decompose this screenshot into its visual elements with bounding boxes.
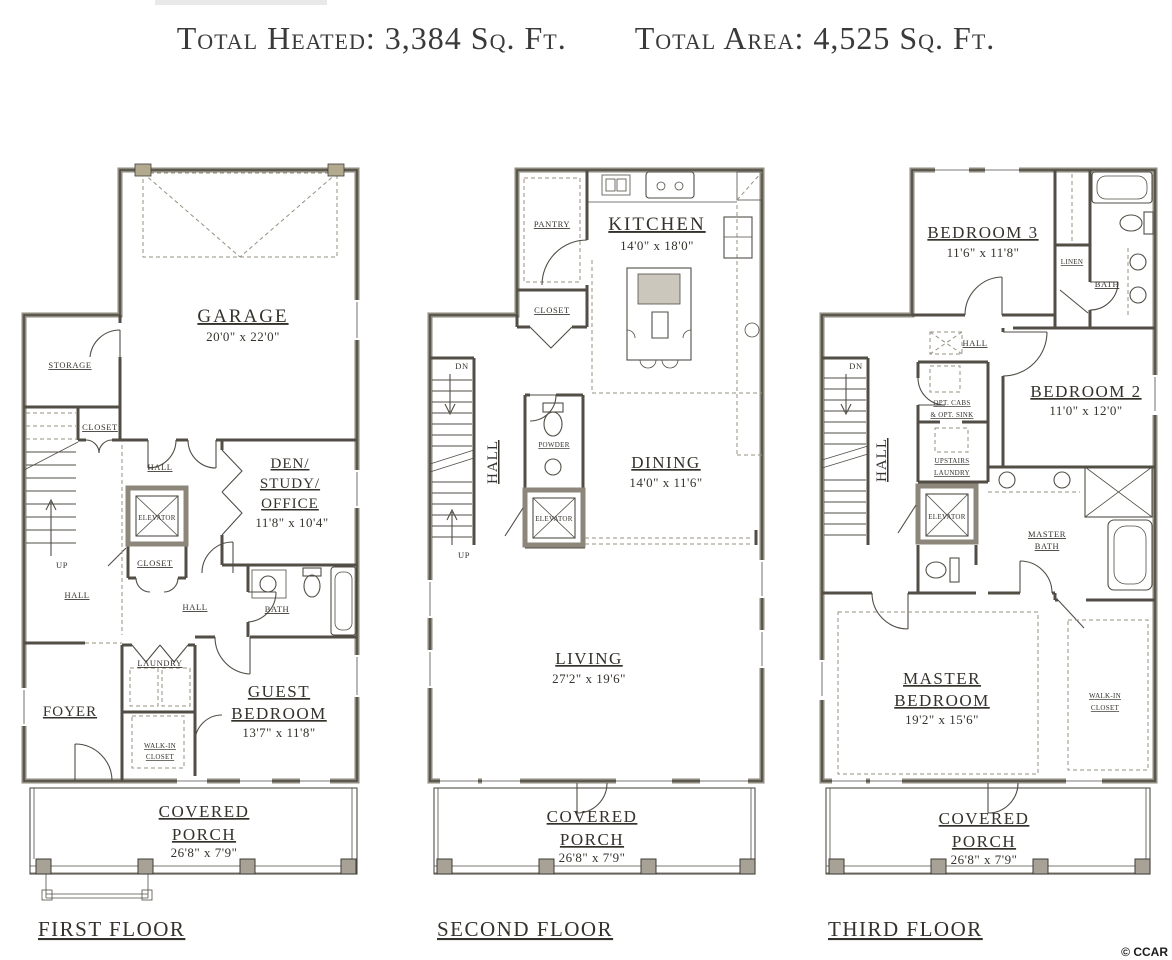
porch-dims: 26'8" x 7'9": [559, 850, 626, 865]
garage-corner-post: [328, 164, 344, 176]
master-bedroom-label-1: MASTER: [903, 669, 981, 688]
opt-cabs-dashed: [930, 366, 960, 392]
second-floor-labels: PANTRY KITCHEN 14'0" x 18'0" CLOSET DN H…: [437, 214, 706, 941]
shower-icon: [1085, 467, 1152, 517]
storage-label: STORAGE: [48, 360, 91, 370]
kitchen-side-sink-icon: [745, 323, 759, 337]
porch-label-1: COVERED: [159, 802, 250, 821]
third-floor-walls: [822, 170, 1155, 781]
sink-icon: [260, 576, 276, 592]
optcabs-label-2: & OPT. SINK: [930, 411, 973, 419]
optcabs-label-1: OPT. CABS: [933, 399, 970, 407]
foyer-label: FOYER: [43, 704, 97, 720]
hall-left-label: HALL: [874, 438, 890, 482]
total-area-label: Total Area: 4,525 Sq. Ft.: [635, 20, 996, 57]
den-label-3: OFFICE: [261, 496, 319, 512]
front-steps: [42, 874, 152, 900]
kitchen-sink-icon: [602, 175, 630, 195]
linen-label: LINEN: [1061, 258, 1084, 266]
porch-label-2: PORCH: [952, 832, 1016, 851]
corner-cabinet: [737, 172, 762, 200]
laundry-appliances-dashed: [130, 668, 190, 706]
door-arcs: [872, 277, 1118, 813]
closet-label: CLOSET: [534, 305, 570, 315]
hall-mid-label: HALL: [182, 602, 207, 612]
bedroom3-dims: 11'6" x 11'8": [947, 245, 1020, 260]
master-bath-label-1: MASTER: [1028, 529, 1066, 539]
floor-plan-sheet: Total Heated: 3,384 Sq. Ft. Total Area: …: [0, 0, 1172, 960]
second-floor-walls: [430, 170, 762, 781]
dn-label: DN: [849, 361, 862, 371]
hall-label: HALL: [485, 440, 501, 484]
first-floor-title: FIRST FLOOR: [38, 917, 185, 941]
powder-room-fixtures: [543, 403, 563, 475]
third-floor-title: THIRD FLOOR: [828, 917, 983, 941]
up-label: UP: [56, 560, 68, 570]
master-bedroom-label-2: BEDROOM: [894, 691, 990, 710]
bathtub-icon: [1108, 520, 1152, 590]
walkin-label-2: CLOSET: [1091, 704, 1120, 712]
closet-top-label: CLOSET: [82, 422, 118, 432]
kitchen-dims: 14'0" x 18'0": [620, 238, 694, 253]
dn-label: DN: [455, 361, 468, 371]
toilet-icon: [303, 568, 321, 597]
stairs-icon: [24, 413, 78, 556]
den-dims: 11'8" x 10'4": [255, 515, 328, 530]
pantry-label: PANTRY: [534, 219, 570, 229]
walkin-label-1: WALK-IN: [1089, 692, 1121, 700]
stairs-icon: [430, 374, 474, 545]
den-label-2: STUDY/: [260, 476, 320, 492]
porch-dims: 26'8" x 7'9": [951, 852, 1018, 867]
sink-icon: [1130, 254, 1146, 270]
porch-label-2: PORCH: [172, 825, 236, 844]
master-bath-fixtures: [988, 467, 1152, 590]
upstairs-laundry-label-2: LAUNDRY: [934, 469, 970, 477]
garage-ceiling-dashed: [143, 173, 337, 257]
den-label-1: DEN/: [271, 456, 310, 472]
living-dims: 27'2" x 19'6": [552, 671, 626, 686]
copyright-notice: © CCAR: [1121, 945, 1168, 959]
sink-icon: [545, 459, 561, 475]
sink-icon: [1130, 287, 1146, 303]
dining-label: DINING: [631, 453, 700, 472]
sink-icon: [1054, 472, 1070, 488]
first-floor-labels: GARAGE 20'0" x 22'0" STORAGE CLOSET HALL…: [38, 306, 329, 941]
third-floor-labels: BEDROOM 3 11'6" x 11'8" LINEN BATH HALL …: [828, 223, 1142, 941]
bedroom2-label: BEDROOM 2: [1030, 382, 1141, 401]
laundry-label: LAUNDRY: [137, 658, 182, 668]
master-bedroom-dims: 19'2" x 15'6": [905, 712, 979, 727]
up-label: UP: [458, 550, 470, 560]
sheet-title: Total Heated: 3,384 Sq. Ft. Total Area: …: [0, 20, 1172, 57]
hall-top-label: HALL: [147, 462, 172, 472]
kitchen-label: KITCHEN: [608, 214, 705, 235]
master-bath-label-2: BATH: [1035, 541, 1060, 551]
hall-boundary-dashed: [85, 445, 122, 643]
wc-toilet-icon: [926, 558, 959, 582]
kitchen-island-icon: [627, 268, 691, 368]
laundry-cabinet-dashed: [935, 428, 968, 452]
bathtub-icon: [331, 567, 356, 635]
garage-dims: 20'0" x 22'0": [206, 329, 280, 344]
second-floor-plan: PANTRY KITCHEN 14'0" x 18'0" CLOSET DN H…: [420, 158, 770, 958]
porch-dims: 26'8" x 7'9": [171, 845, 238, 860]
bathtub-icon: [1092, 172, 1152, 203]
porch-label-1: COVERED: [547, 807, 638, 826]
powder-label: POWDER: [538, 441, 569, 449]
bath-label: BATH: [265, 604, 290, 614]
sink-icon: [999, 472, 1015, 488]
garage-corner-post: [135, 164, 151, 176]
first-floor-plan: GARAGE 20'0" x 22'0" STORAGE CLOSET HALL…: [18, 158, 370, 958]
dining-dims: 14'0" x 11'6": [629, 475, 702, 490]
stove-icon: [646, 172, 694, 198]
living-label: LIVING: [555, 649, 623, 668]
elevator-label: ELEVATOR: [138, 514, 176, 522]
total-heated-label: Total Heated: 3,384 Sq. Ft.: [177, 20, 567, 57]
bathroom-fixtures: [252, 567, 356, 635]
elevator-label: ELEVATOR: [928, 513, 966, 521]
cropped-artifact-bar: [155, 0, 327, 5]
bedroom2-dims: 11'0" x 12'0": [1049, 403, 1122, 418]
garage-label: GARAGE: [197, 306, 288, 327]
guest-dims: 13'7" x 11'8": [242, 725, 315, 740]
upstairs-laundry-label-1: UPSTAIRS: [935, 457, 970, 465]
guest-label-2: BEDROOM: [231, 704, 327, 723]
third-floor-plan: BEDROOM 3 11'6" x 11'8" LINEN BATH HALL …: [810, 158, 1172, 958]
walkin-label-1: WALK-IN: [144, 742, 176, 750]
walkin-label-2: CLOSET: [146, 753, 175, 761]
bathroom-fixtures-top: [1092, 172, 1153, 315]
bedroom3-label: BEDROOM 3: [927, 223, 1038, 242]
fridge-icon: [724, 217, 752, 258]
pantry-shelves-dashed: [524, 178, 580, 282]
guest-label-1: GUEST: [248, 682, 310, 701]
porch-label-2: PORCH: [560, 830, 624, 849]
porch-label-1: COVERED: [939, 809, 1030, 828]
closet-mid-label: CLOSET: [137, 558, 173, 568]
elevator-label: ELEVATOR: [535, 515, 573, 523]
porch-posts: [36, 859, 356, 874]
attic-access-dashed: [930, 332, 962, 354]
bath-label: BATH: [1095, 279, 1120, 289]
hall-left-label: HALL: [64, 590, 89, 600]
stairs-icon: [822, 374, 868, 535]
elevator-icon: [108, 488, 186, 566]
toilet-icon: [1120, 212, 1153, 234]
second-floor-title: SECOND FLOOR: [437, 917, 613, 941]
hall-top-label: HALL: [962, 338, 987, 348]
